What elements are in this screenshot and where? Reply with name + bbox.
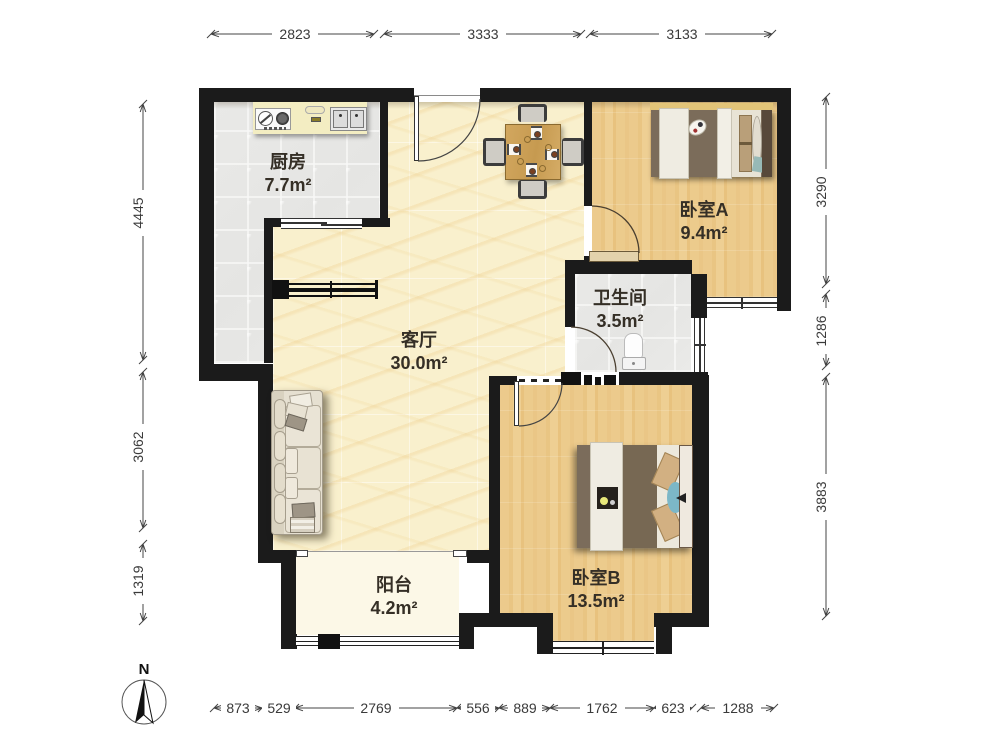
- svg-text:3062: 3062: [130, 431, 146, 462]
- svg-text:1286: 1286: [813, 315, 829, 346]
- svg-text:3133: 3133: [666, 26, 697, 42]
- svg-text:889: 889: [513, 700, 537, 716]
- svg-text:N: N: [139, 661, 150, 678]
- svg-text:2769: 2769: [360, 700, 391, 716]
- svg-text:1319: 1319: [130, 565, 146, 596]
- svg-text:4445: 4445: [130, 197, 146, 228]
- svg-text:873: 873: [226, 700, 250, 716]
- svg-text:556: 556: [466, 700, 490, 716]
- svg-text:2823: 2823: [279, 26, 310, 42]
- svg-text:3333: 3333: [467, 26, 498, 42]
- svg-text:623: 623: [661, 700, 685, 716]
- svg-text:1288: 1288: [722, 700, 753, 716]
- svg-text:529: 529: [267, 700, 291, 716]
- svg-text:3883: 3883: [813, 481, 829, 512]
- svg-text:3290: 3290: [813, 176, 829, 207]
- svg-text:1762: 1762: [586, 700, 617, 716]
